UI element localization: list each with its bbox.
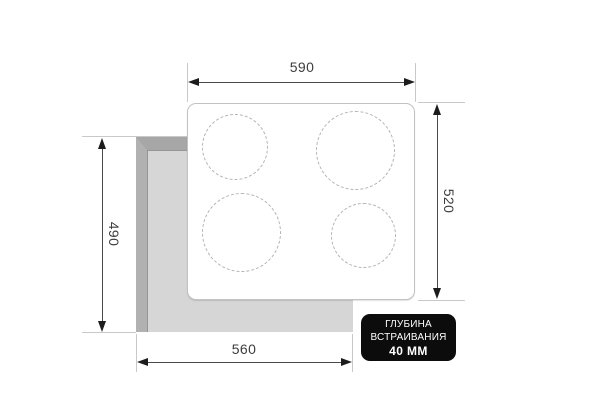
burner-zone-top-left bbox=[202, 114, 268, 180]
arrowhead-left-icon bbox=[188, 78, 199, 86]
arrowhead-up-icon bbox=[433, 104, 441, 115]
extension-line bbox=[418, 300, 465, 301]
dimension-label: 490 bbox=[106, 219, 122, 249]
burner-zone-bottom-left bbox=[202, 193, 281, 272]
badge-line-3: 40 ММ bbox=[389, 344, 428, 358]
dimension-label: 560 bbox=[214, 341, 274, 357]
badge-line-2: ВСТРАИВАНИЯ bbox=[370, 331, 446, 344]
installation-depth-badge: ГЛУБИНА ВСТРАИВАНИЯ 40 ММ bbox=[361, 314, 456, 361]
arrowhead-down-icon bbox=[433, 288, 441, 299]
extension-line bbox=[82, 332, 136, 333]
dimension-line bbox=[437, 113, 438, 290]
dimension-diagram: 590 520 490 560 ГЛУБИНА ВСТРАИВАНИЯ 40 М… bbox=[0, 0, 600, 420]
extension-line bbox=[136, 334, 137, 372]
arrowhead-left-icon bbox=[137, 358, 148, 366]
burner-zone-bottom-right bbox=[331, 203, 396, 268]
arrowhead-up-icon bbox=[98, 138, 106, 149]
arrowhead-right-icon bbox=[341, 358, 352, 366]
dimension-label: 590 bbox=[272, 59, 332, 75]
dimension-label: 520 bbox=[441, 186, 457, 216]
badge-line-1: ГЛУБИНА bbox=[385, 318, 432, 331]
extension-line bbox=[418, 102, 465, 103]
extension-line bbox=[415, 63, 416, 102]
arrowhead-right-icon bbox=[404, 78, 415, 86]
dimension-line bbox=[196, 82, 406, 83]
extension-line bbox=[82, 136, 187, 137]
dimension-line bbox=[102, 147, 103, 322]
burner-zone-top-right bbox=[316, 111, 395, 190]
dimension-line bbox=[146, 362, 342, 363]
extension-line bbox=[352, 334, 353, 372]
arrowhead-down-icon bbox=[98, 321, 106, 332]
